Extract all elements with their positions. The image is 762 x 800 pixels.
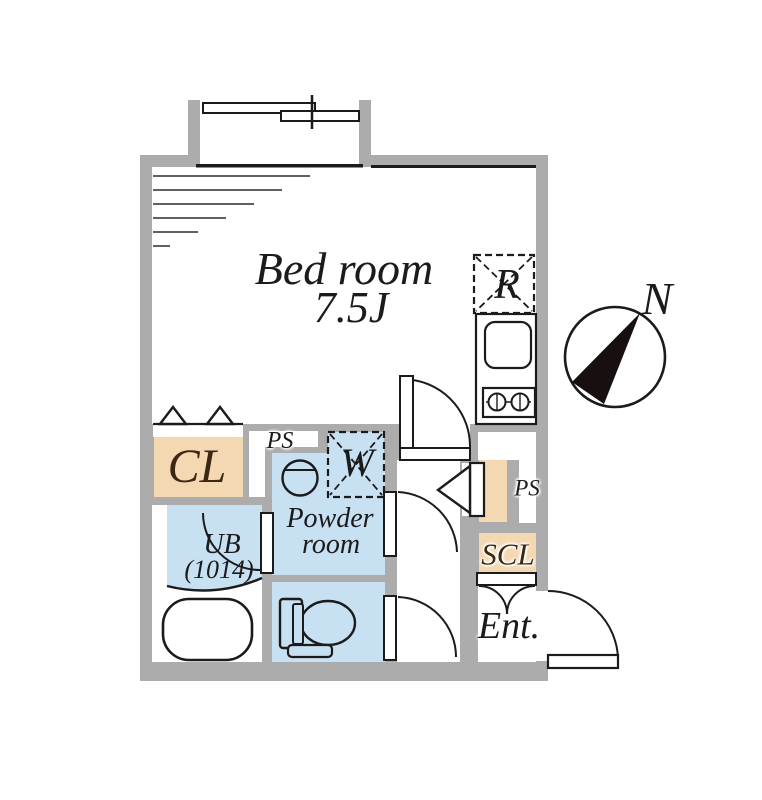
toilet-door-leaf — [384, 596, 396, 660]
entrance-door-leaf — [548, 655, 618, 668]
bedroom-size-label: 7.5J — [314, 286, 389, 330]
bay-wall-right — [359, 100, 371, 167]
unit-bath-door-leaf — [261, 513, 273, 573]
kitchen-sink-icon — [485, 322, 531, 368]
corridor-niche-top — [478, 432, 536, 460]
closet-opening — [153, 424, 243, 437]
floor-plan: Bed room 7.5J R CL PS W Powder room UB (… — [0, 0, 762, 800]
entrance-door-swing — [548, 591, 618, 658]
wash-basin-icon — [283, 461, 318, 496]
powder-room-door-leaf — [384, 492, 396, 556]
compass-north-label: N — [642, 276, 673, 322]
entrance-door — [548, 591, 618, 668]
pipe-space-2-label: PS — [514, 477, 540, 500]
refrigerator-label: R — [494, 264, 520, 306]
bay-wall-left — [188, 100, 200, 167]
hall-closet-door-leaf — [470, 463, 484, 516]
two-burner-stove-icon — [483, 388, 535, 417]
top-inner-wall-line — [371, 165, 536, 168]
washer-label: W — [340, 443, 373, 483]
window-sill-line — [196, 164, 363, 168]
shoe-closet-label: SCL — [481, 539, 534, 570]
unit-bath-label-line2: (1014) — [184, 557, 253, 583]
bottom-wall — [140, 669, 548, 681]
bedroom-door-leaf — [400, 376, 413, 448]
pipe-space-1-label: PS — [267, 429, 294, 453]
shoe-closet-sill — [477, 573, 536, 585]
pipe-space-1-niche-side — [249, 447, 265, 497]
left-wall — [140, 155, 152, 681]
powder-room-label-line2: room — [302, 531, 360, 559]
bedroom-door-sill — [400, 448, 470, 460]
kitchen-counter — [476, 314, 536, 424]
closet-label: CL — [168, 443, 227, 491]
window-pane-right — [281, 111, 359, 121]
floor-plan-drawing — [0, 0, 762, 800]
entrance-label: Ent. — [478, 607, 540, 645]
bathtub-icon — [163, 599, 252, 660]
